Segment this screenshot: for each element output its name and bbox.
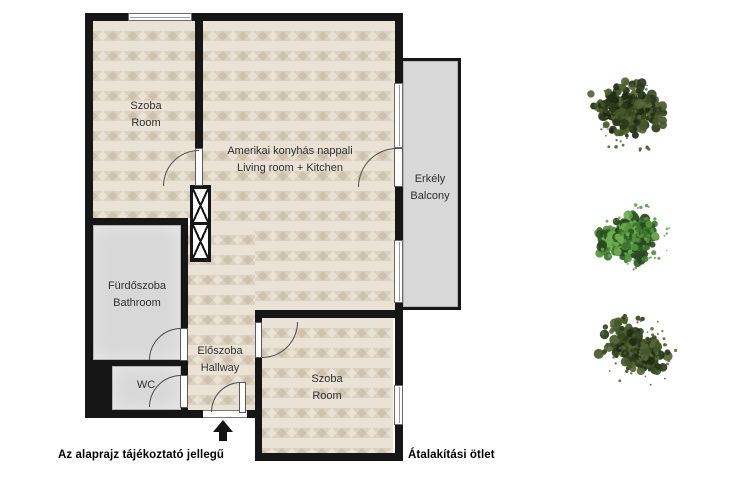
tree-icon <box>576 176 696 296</box>
wall <box>395 186 403 240</box>
wall <box>255 453 403 461</box>
door-leaf <box>180 375 188 408</box>
wall <box>395 318 403 385</box>
wall <box>255 310 262 322</box>
disclaimer-note: Az alaprajz tájékoztató jellegű <box>58 449 224 461</box>
room-name-hu: Erkély <box>410 171 449 188</box>
wall <box>85 218 188 225</box>
room-name-hu: Amerikai konyhás nappali <box>227 143 352 160</box>
window <box>128 13 192 21</box>
arrow-stem <box>219 432 227 441</box>
label-bathroom: Fürdőszoba Bathroom <box>108 278 166 312</box>
room-name-hu: Fürdőszoba <box>108 278 166 295</box>
wall <box>85 13 93 418</box>
entrance-arrow-icon <box>213 420 233 442</box>
arrow-head <box>213 420 233 432</box>
tree-icon <box>581 292 701 412</box>
room-name-en: Room <box>130 115 161 132</box>
wall <box>395 425 403 453</box>
wall <box>181 360 188 375</box>
room-name-en: Hallway <box>197 360 242 377</box>
window <box>394 385 403 425</box>
window <box>394 83 403 148</box>
door-leaf <box>180 328 188 361</box>
shaft <box>190 185 211 262</box>
label-balcony: Erkély Balcony <box>410 171 449 205</box>
label-bedroom-bottom: Szoba Room <box>311 371 342 405</box>
wall <box>195 13 203 148</box>
tree-icon <box>570 54 690 174</box>
room-name-hu: Szoba <box>130 98 161 115</box>
room-name-en: Room <box>311 388 342 405</box>
room-name-hu: Szoba <box>311 371 342 388</box>
wall <box>181 225 188 328</box>
variant-note: Átalakítási ötlet <box>408 449 495 461</box>
room-name-en: Bathroom <box>108 295 166 312</box>
room-name-hu: WC <box>137 377 155 394</box>
wall <box>395 13 403 83</box>
label-hallway: Előszoba Hallway <box>197 343 242 377</box>
floor-plan: Szoba Room Amerikai konyhás nappali Livi… <box>0 0 730 481</box>
door-leaf <box>255 322 262 358</box>
room-name-en: Balcony <box>410 188 449 205</box>
label-living-room: Amerikai konyhás nappali Living room + K… <box>227 143 352 177</box>
window <box>394 240 403 303</box>
wall <box>255 358 262 453</box>
wall <box>93 360 181 366</box>
label-wc: WC <box>137 377 155 394</box>
wall <box>181 407 188 418</box>
room-name-hu: Előszoba <box>197 343 242 360</box>
room-name-en: Living room + Kitchen <box>227 160 352 177</box>
shaft-x-icon <box>193 189 208 222</box>
shaft-x-icon <box>193 225 208 258</box>
wall <box>255 310 403 318</box>
label-bedroom-top: Szoba Room <box>130 98 161 132</box>
